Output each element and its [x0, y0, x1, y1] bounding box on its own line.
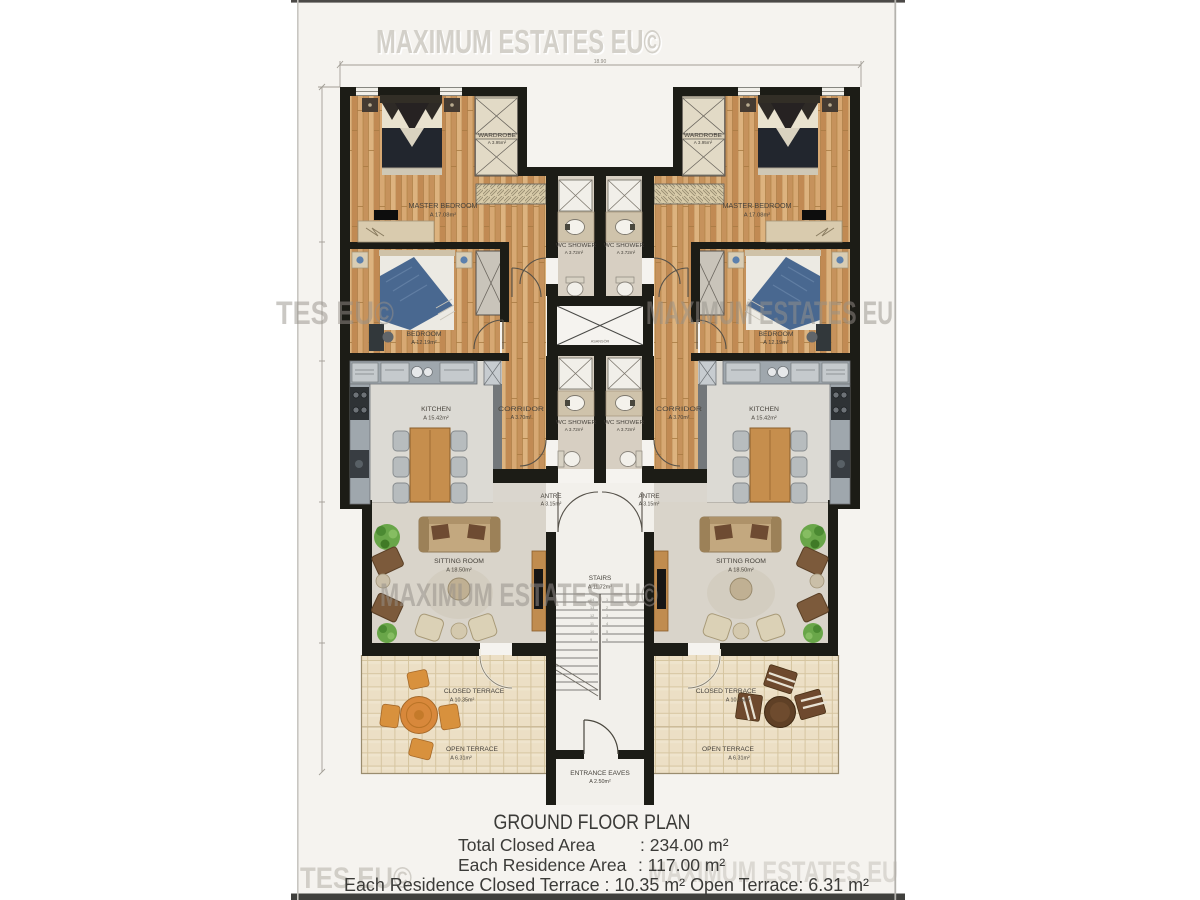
- svg-text:WARDROBE: WARDROBE: [478, 133, 517, 139]
- svg-text:MASTER BEDROOM: MASTER BEDROOM: [722, 201, 791, 210]
- svg-text:KITCHEN: KITCHEN: [749, 406, 779, 413]
- svg-text:ASANSÖR: ASANSÖR: [591, 340, 610, 344]
- svg-text:CLOSED TERRACE: CLOSED TERRACE: [444, 688, 505, 695]
- svg-text:5: 5: [606, 630, 608, 634]
- svg-text:OPEN TERRACE: OPEN TERRACE: [702, 746, 755, 753]
- svg-text:KITCHEN: KITCHEN: [421, 406, 451, 413]
- svg-text:Total Closed Area: Total Closed Area: [458, 835, 595, 855]
- svg-text:WARDROBE: WARDROBE: [684, 133, 723, 139]
- svg-text:WC SHOWER: WC SHOWER: [556, 420, 596, 426]
- svg-text:Each Residence Area: Each Residence Area: [458, 855, 627, 875]
- svg-text:A 3.72m²: A 3.72m²: [617, 250, 636, 255]
- svg-text:: 234.00 m²: : 234.00 m²: [640, 835, 729, 855]
- svg-text:OPEN TERRACE: OPEN TERRACE: [446, 746, 499, 753]
- svg-text:A 10.35m²: A 10.35m²: [726, 698, 751, 704]
- svg-text:3: 3: [606, 614, 608, 618]
- svg-text:A 3.95m²: A 3.95m²: [488, 140, 507, 145]
- svg-text:A 6.31m²: A 6.31m²: [728, 756, 750, 762]
- svg-text:: 117.00 m²: : 117.00 m²: [638, 855, 725, 875]
- svg-text:A 3.70m²: A 3.70m²: [511, 415, 532, 421]
- svg-text:A 12.19m²: A 12.19m²: [763, 340, 789, 346]
- svg-text:Each Residence Closed Terrace: Each Residence Closed Terrace : 10.35 m²…: [344, 875, 869, 895]
- svg-text:A 12.19m²: A 12.19m²: [411, 340, 437, 346]
- svg-text:CORRIDOR: CORRIDOR: [498, 407, 545, 413]
- svg-text:A 17.08m²: A 17.08m²: [430, 213, 456, 219]
- svg-text:WC SHOWER: WC SHOWER: [604, 420, 644, 426]
- svg-text:ENTRANCE EAVES: ENTRANCE EAVES: [570, 770, 630, 777]
- svg-text:GROUND FLOOR PLAN: GROUND FLOOR PLAN: [494, 811, 691, 834]
- svg-text:A 6.31m²: A 6.31m²: [450, 756, 472, 762]
- svg-text:A 3.72m²: A 3.72m²: [565, 250, 584, 255]
- svg-text:SITTING ROOM: SITTING ROOM: [434, 558, 484, 565]
- svg-text:A 2.50m²: A 2.50m²: [589, 779, 611, 785]
- svg-text:A 10.35m²: A 10.35m²: [450, 698, 475, 704]
- svg-text:MASTER BEDROOM: MASTER BEDROOM: [408, 201, 477, 210]
- svg-text:A 3.15m²: A 3.15m²: [541, 502, 562, 508]
- svg-text:10: 10: [590, 630, 594, 634]
- svg-text:MAXIMUM ESTATES EU: MAXIMUM ESTATES EU: [646, 295, 893, 331]
- svg-text:MAXIMUM ESTATES EU©: MAXIMUM ESTATES EU©: [376, 23, 661, 60]
- svg-text:ANTRE: ANTRE: [639, 493, 660, 500]
- svg-text:BEDROOM: BEDROOM: [406, 331, 441, 338]
- svg-text:A 3.72m²: A 3.72m²: [565, 427, 584, 432]
- svg-text:CORRIDOR: CORRIDOR: [656, 407, 703, 413]
- svg-text:4: 4: [606, 622, 608, 626]
- svg-text:12: 12: [590, 614, 594, 618]
- svg-text:A 3.72m²: A 3.72m²: [617, 427, 636, 432]
- svg-text:ANTRE: ANTRE: [541, 493, 562, 500]
- svg-text:6: 6: [606, 638, 608, 642]
- svg-text:TES EU©: TES EU©: [276, 295, 394, 331]
- svg-text:A 15.42m²: A 15.42m²: [751, 416, 777, 422]
- svg-text:11: 11: [590, 622, 594, 626]
- svg-text:9: 9: [590, 638, 592, 642]
- svg-text:A 18.50m²: A 18.50m²: [446, 568, 472, 574]
- svg-text:MAXIMUM ESTATES EU©: MAXIMUM ESTATES EU©: [380, 577, 658, 613]
- svg-text:A 3.15m²: A 3.15m²: [639, 502, 660, 508]
- svg-text:18.90: 18.90: [594, 59, 607, 65]
- svg-text:SITTING ROOM: SITTING ROOM: [716, 558, 766, 565]
- svg-text:A 15.42m²: A 15.42m²: [423, 416, 449, 422]
- svg-text:BEDROOM: BEDROOM: [758, 331, 793, 338]
- svg-text:A 3.70m²: A 3.70m²: [669, 415, 690, 421]
- svg-text:WC SHOWER: WC SHOWER: [604, 243, 644, 249]
- svg-text:CLOSED TERRACE: CLOSED TERRACE: [696, 688, 757, 695]
- svg-text:A 17.08m²: A 17.08m²: [744, 213, 770, 219]
- svg-text:A 3.95m²: A 3.95m²: [694, 140, 713, 145]
- svg-text:A 18.50m²: A 18.50m²: [728, 568, 754, 574]
- svg-text:WC SHOWER: WC SHOWER: [556, 243, 596, 249]
